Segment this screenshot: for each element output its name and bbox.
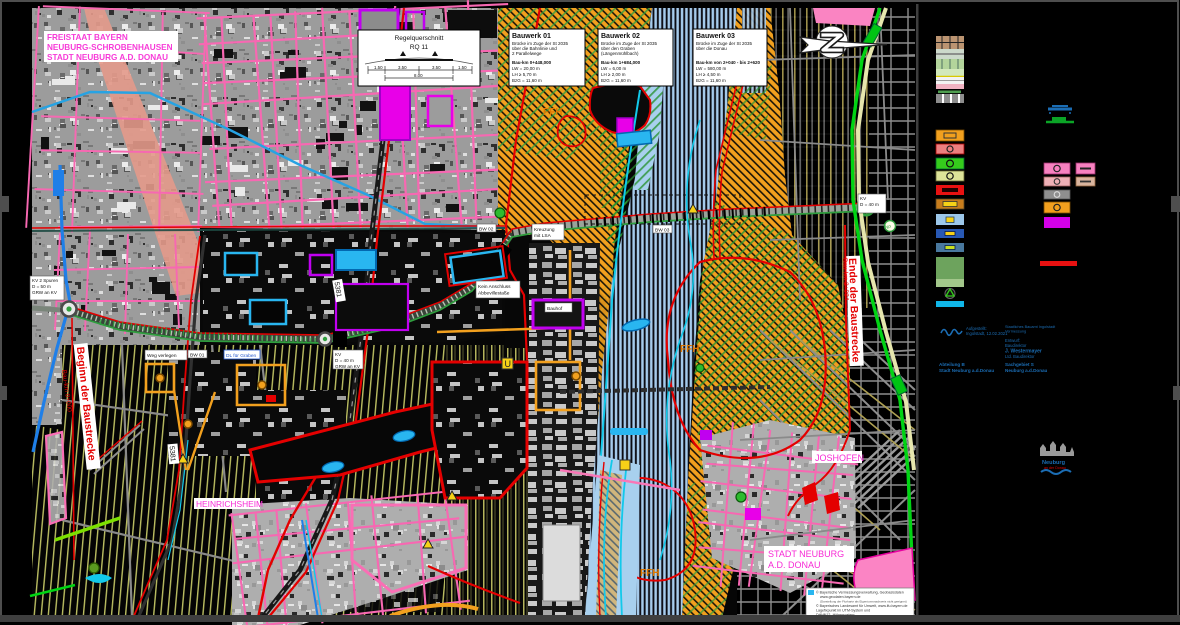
svg-text:Vermessung: Vermessung <box>1005 330 1026 334</box>
svg-text:Bauwerk 02: Bauwerk 02 <box>601 33 640 40</box>
svg-text:LW = 20,00 m: LW = 20,00 m <box>512 66 540 71</box>
svg-text:GRW an KV: GRW an KV <box>32 290 58 295</box>
svg-text:LH ≥ 2,00 m: LH ≥ 2,00 m <box>601 72 626 77</box>
svg-text:D = 40 m: D = 40 m <box>860 202 879 207</box>
svg-text:www.geodaten.bayern.de: www.geodaten.bayern.de <box>820 595 861 599</box>
svg-text:Bau-km 1+684,000: Bau-km 1+684,000 <box>601 60 641 65</box>
svg-text:8.00: 8.00 <box>414 73 423 78</box>
svg-text:Ltd. Baudirektor: Ltd. Baudirektor <box>1005 354 1035 359</box>
svg-text:2 Parallelwege: 2 Parallelwege <box>512 51 542 56</box>
svg-text:FREISTAAT BAYERN: FREISTAAT BAYERN <box>47 33 128 42</box>
svg-text:3.50: 3.50 <box>432 65 441 70</box>
svg-text:STADT NEUBURG: STADT NEUBURG <box>768 549 844 559</box>
svg-text:Ingolstadt, 12.02.2021: Ingolstadt, 12.02.2021 <box>966 331 1008 336</box>
svg-text:Regelquerschnitt: Regelquerschnitt <box>395 35 444 42</box>
svg-text:Stadt Neuburg a.d.Donau: Stadt Neuburg a.d.Donau <box>939 368 994 373</box>
svg-text:über die Donau: über die Donau <box>696 46 727 51</box>
svg-text:Abbevillestaße: Abbevillestaße <box>478 291 510 297</box>
svg-text:Abteilung B: Abteilung B <box>939 362 965 367</box>
svg-text:RQ 11: RQ 11 <box>410 44 429 51</box>
svg-text:1.50: 1.50 <box>458 65 467 70</box>
svg-text:BzG = 11,60 m: BzG = 11,60 m <box>696 78 726 83</box>
svg-text:BW 03: BW 03 <box>655 228 670 234</box>
svg-text:5381: 5381 <box>168 446 176 462</box>
svg-text:KV: KV <box>860 196 867 201</box>
svg-text:© Bayerisches Landesamt für Um: © Bayerisches Landesamt für Umwelt, www.… <box>816 604 908 608</box>
svg-text:KV: KV <box>335 352 342 357</box>
svg-text:1.50: 1.50 <box>374 65 383 70</box>
svg-text:BzG = 11,60 m: BzG = 11,60 m <box>601 78 631 83</box>
svg-text:Bauwerk 01: Bauwerk 01 <box>512 33 551 40</box>
svg-text:JOSHOFEN: JOSHOFEN <box>815 453 864 463</box>
svg-text:D = 50 m: D = 50 m <box>32 284 51 289</box>
svg-text:KV 2 Spuren: KV 2 Spuren <box>32 278 58 283</box>
svg-text:NP: NP <box>885 225 891 230</box>
svg-text:BW 02: BW 02 <box>479 227 494 233</box>
svg-text:Staatliches Bauamt Ingolstadt: Staatliches Bauamt Ingolstadt <box>1005 325 1056 329</box>
svg-text:Neuburg a.d.Donau: Neuburg a.d.Donau <box>1005 368 1048 373</box>
svg-text:FFH: FFH <box>640 568 659 579</box>
svg-text:Sachgebiet S: Sachgebiet S <box>1005 362 1034 367</box>
svg-text:D = 40 m: D = 40 m <box>335 358 354 363</box>
svg-text:Bau-km 0+448,000: Bau-km 0+448,000 <box>512 60 552 65</box>
svg-text:Lagefixpunkt im UTM-System und: Lagefixpunkt im UTM-System und <box>816 609 870 613</box>
svg-text:U: U <box>505 359 512 369</box>
svg-text:BW 01: BW 01 <box>190 353 205 359</box>
svg-text:Weg verlegen: Weg verlegen <box>147 353 177 359</box>
svg-text:Bauhof: Bauhof <box>547 306 563 312</box>
svg-text:Baudirektor: Baudirektor <box>1005 343 1027 348</box>
svg-text:FFH: FFH <box>680 344 699 355</box>
svg-text:FFH: FFH <box>543 107 562 118</box>
svg-text:Bau-km von 2+040 - bis 2+620: Bau-km von 2+040 - bis 2+620 <box>696 60 761 65</box>
svg-text:DL für Graben: DL für Graben <box>226 353 257 359</box>
svg-text:LH ≥ 5,70 m: LH ≥ 5,70 m <box>512 72 537 77</box>
svg-text:(Längenmühlbach): (Längenmühlbach) <box>601 51 639 56</box>
svg-text:Kein Anschluss: Kein Anschluss <box>478 284 511 290</box>
svg-text:© Bayerische Vermessungsverwal: © Bayerische Vermessungsverwaltung, Geob… <box>816 591 904 595</box>
svg-text:(Darstellung der Flurkarte als: (Darstellung der Flurkarte als Eigentums… <box>820 600 907 604</box>
svg-text:STADT NEUBURG A.D. DONAU: STADT NEUBURG A.D. DONAU <box>47 53 168 62</box>
svg-text:GRW an KV: GRW an KV <box>335 364 361 369</box>
svg-text:3.50: 3.50 <box>398 65 407 70</box>
svg-text:BzG = 11,60 m: BzG = 11,60 m <box>512 78 542 83</box>
svg-text:A.D. DONAU: A.D. DONAU <box>768 560 821 570</box>
svg-text:HEINRICHSHEIM: HEINRICHSHEIM <box>196 499 263 509</box>
svg-text:LW = 580,00 m: LW = 580,00 m <box>696 66 727 71</box>
svg-text:Kreuzung: Kreuzung <box>534 227 555 233</box>
svg-text:Bauwerk 03: Bauwerk 03 <box>696 33 735 40</box>
svg-text:LW = 6,00 m: LW = 6,00 m <box>601 66 627 71</box>
svg-text:mit LSA: mit LSA <box>534 233 552 239</box>
svg-text:NEUBURG-SCHROBENHAUSEN: NEUBURG-SCHROBENHAUSEN <box>47 43 173 52</box>
svg-text:LH ≥ 4,50 m: LH ≥ 4,50 m <box>696 72 721 77</box>
